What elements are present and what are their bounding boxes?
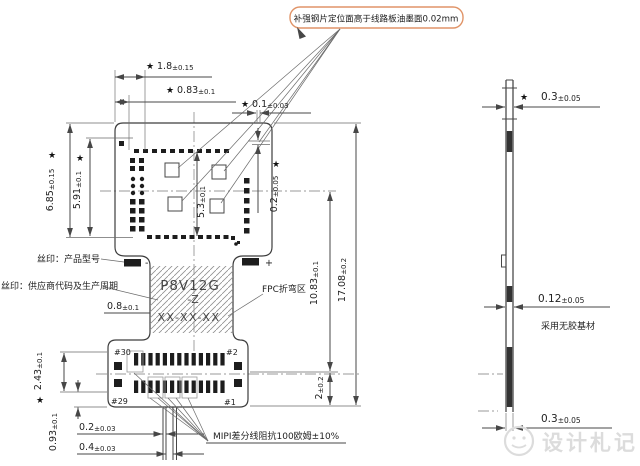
sensor-pads xyxy=(119,141,250,244)
watermark: 设计札记 xyxy=(505,427,638,455)
watermark-text: 设计札记 xyxy=(542,431,638,455)
dim-0-4-trace: 0.4±0.03 xyxy=(79,442,116,453)
dim-17-08: 17.08±0.2 xyxy=(337,258,348,302)
star-icon: ★ xyxy=(48,151,56,161)
model-line1: P8V12G xyxy=(160,278,220,294)
dim-0-2-trace: 0.2±0.03 xyxy=(79,422,116,433)
minus-marker: - xyxy=(145,258,148,269)
pin-30-label: #30 xyxy=(114,348,131,357)
dim-0-2-step: 0.2±0.05 xyxy=(269,176,280,213)
dim-side-top: 0.3±0.05 xyxy=(541,91,581,103)
fpc-dimension-drawing: - + P8V12G -Z XX-XX-XX #30 #2 #29 #1 补强钢… xyxy=(0,0,640,466)
star-icon: ★ xyxy=(241,100,249,110)
star-icon: ★ xyxy=(166,86,174,96)
model-line3: XX-XX-XX xyxy=(158,311,221,324)
silk-model-label: 丝印：产品型号 xyxy=(37,253,100,265)
dim-6-85: 6.85±0.15 xyxy=(45,169,56,212)
note-leader-arrow-icon xyxy=(297,27,306,39)
dim-2-43: 2.43±0.1 xyxy=(33,352,44,390)
centerlines xyxy=(96,112,503,374)
dim-10-83: 10.83±0.1 xyxy=(309,261,320,305)
mipi-impedance-label: MIPI差分线阻抗100欧姆±10% xyxy=(213,430,340,442)
drawing-canvas: - + P8V12G -Z XX-XX-XX #30 #2 #29 #1 补强钢… xyxy=(0,0,640,466)
dim-0-83: 0.83±0.1 xyxy=(177,85,215,96)
reinforcement-note: 补强钢片定位面高于线路板油墨面0.02mm xyxy=(178,7,463,203)
star-icon: ★ xyxy=(146,62,154,72)
pin-2-label: #2 xyxy=(226,348,238,357)
star-icon: ★ xyxy=(520,93,528,103)
pin-29-label: #29 xyxy=(111,397,128,406)
side-view: ★ 0.3±0.05 0.12±0.05 采用无胶基材 0.3±0.05 xyxy=(478,80,612,431)
dim-side-bot: 0.3±0.05 xyxy=(541,413,581,425)
dim-0-93: 0.93±0.1 xyxy=(48,413,59,451)
dim-2: 2±0.2 xyxy=(314,376,325,399)
pin-1-label: #1 xyxy=(224,398,236,407)
star-icon: ★ xyxy=(272,160,280,170)
dim-0-8: 0.8±0.1 xyxy=(107,301,139,312)
star-icon: ★ xyxy=(36,396,44,406)
no-glue-base-label: 采用无胶基材 xyxy=(541,320,595,332)
dim-side-mid: 0.12±0.05 xyxy=(538,293,585,305)
dim-1-8: 1.8±0.15 xyxy=(157,61,194,72)
dim-0-1: 0.1±0.03 xyxy=(252,99,289,110)
silk-vendor-label: 丝印：供应商代码及生产周期 xyxy=(1,280,118,292)
model-line2: -Z xyxy=(187,293,199,306)
star-icon: ★ xyxy=(76,154,84,164)
fpc-bend-zone-label: FPC折弯区 xyxy=(262,283,306,295)
note-text: 补强钢片定位面高于线路板油墨面0.02mm xyxy=(294,13,459,25)
logo-icon xyxy=(505,427,533,455)
plus-marker: + xyxy=(265,258,273,269)
dim-5-91: 5.91±0.1 xyxy=(72,171,83,209)
